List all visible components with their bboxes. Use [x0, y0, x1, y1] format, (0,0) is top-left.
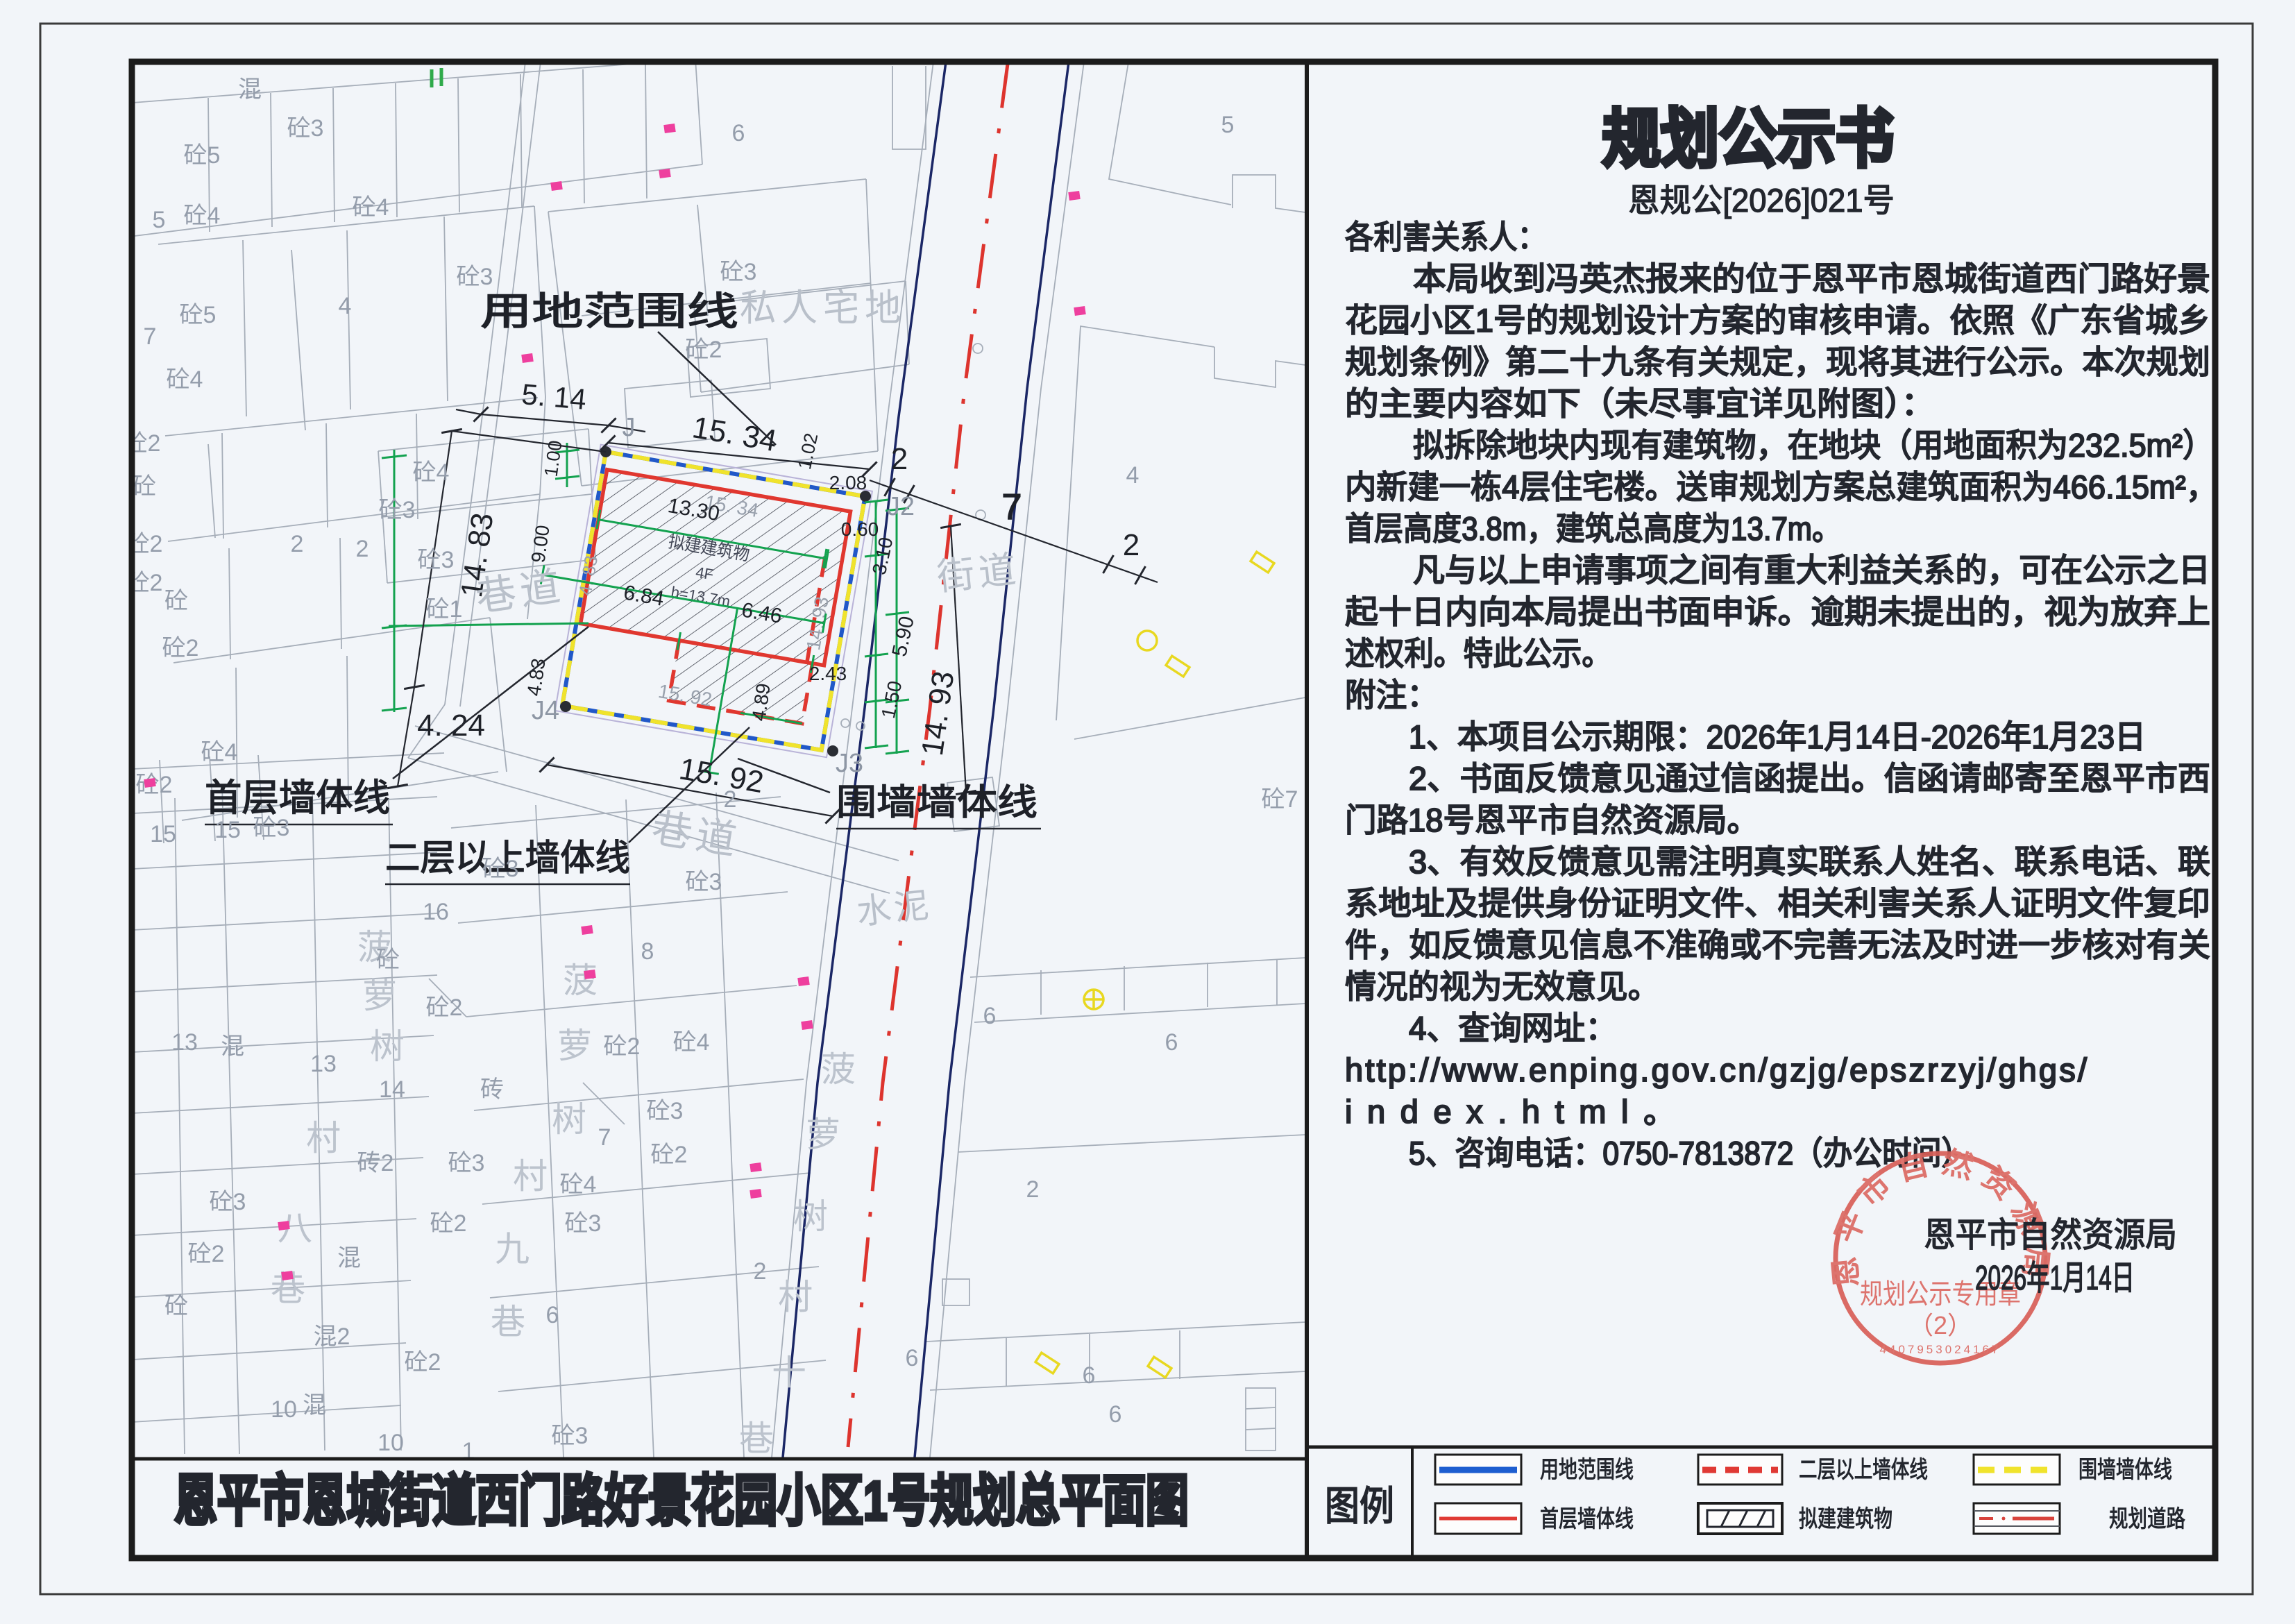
svg-text:砖2: 砖2: [357, 1150, 394, 1176]
svg-text:首层墙体线: 首层墙体线: [205, 777, 390, 819]
svg-text:7: 7: [1002, 487, 1022, 527]
svg-text:情况的视为无效意见。: 情况的视为无效意见。: [1345, 968, 1659, 1005]
svg-text:附注：: 附注：: [1345, 677, 1438, 713]
svg-text:6: 6: [906, 1345, 919, 1371]
svg-text:1、本项目公示期限：2026年1月14日-2026年1月23: 1、本项目公示期限：2026年1月14日-2026年1月23日: [1409, 718, 2146, 755]
svg-text:砼1: 砼1: [426, 596, 463, 623]
svg-text:14: 14: [379, 1076, 405, 1103]
svg-text:16: 16: [423, 899, 449, 925]
svg-text:6: 6: [1083, 1362, 1096, 1389]
svg-text:砼3: 砼3: [647, 1098, 684, 1124]
svg-text:砼: 砼: [164, 1293, 188, 1319]
svg-text:树: 树: [552, 1100, 586, 1139]
svg-text:水泥: 水泥: [855, 886, 933, 932]
svg-text:砼3: 砼3: [720, 259, 757, 285]
svg-text:件，如反馈意见信息不准确或不完善无法及时进一步核对有关: 件，如反馈意见信息不准确或不完善无法及时进一步核对有关: [1345, 927, 2210, 963]
svg-text:的主要内容如下（未尽事宜详见附图）：: 的主要内容如下（未尽事宜详见附图）：: [1345, 385, 1935, 422]
svg-text:规划公示书: 规划公示书: [1602, 104, 1894, 175]
svg-text:0.60: 0.60: [841, 518, 879, 540]
svg-text:4: 4: [1126, 462, 1140, 489]
svg-text:私人宅地: 私人宅地: [740, 287, 906, 329]
svg-text:5. 14: 5. 14: [520, 378, 588, 416]
svg-text:砼2: 砼2: [426, 995, 463, 1021]
svg-text:拟拆除地块内现有建筑物，在地块（用地面积为232.5m²）: 拟拆除地块内现有建筑物，在地块（用地面积为232.5m²）: [1413, 427, 2214, 464]
svg-text:砼3: 砼3: [210, 1189, 246, 1215]
svg-text:6: 6: [983, 1003, 997, 1029]
svg-text:本局收到冯英杰报来的位于恩平市恩城街道西门路好景: 本局收到冯英杰报来的位于恩平市恩城街道西门路好景: [1413, 260, 2210, 297]
svg-text:混: 混: [337, 1245, 361, 1271]
svg-text:混: 混: [221, 1033, 244, 1060]
svg-text:混: 混: [303, 1392, 326, 1419]
svg-text:10: 10: [378, 1430, 404, 1456]
svg-text:恩平市自然资源局: 恩平市自然资源局: [1924, 1217, 2177, 1254]
svg-text:混2: 混2: [314, 1323, 350, 1350]
svg-text:砼4: 砼4: [184, 203, 221, 229]
svg-text:恩平市恩城街道西门路好景花园小区1号规划总平面图: 恩平市恩城街道西门路好景花园小区1号规划总平面图: [174, 1470, 1189, 1532]
svg-text:砼4: 砼4: [673, 1029, 710, 1056]
svg-text:村: 村: [306, 1119, 341, 1158]
svg-text:恩规公[2026]021号: 恩规公[2026]021号: [1628, 182, 1895, 219]
svg-text:7: 7: [144, 323, 157, 350]
svg-text:围墙墙体线: 围墙墙体线: [836, 783, 1038, 823]
svg-text:6: 6: [546, 1302, 559, 1328]
svg-text:二层以上墙体线: 二层以上墙体线: [1799, 1457, 1928, 1483]
svg-text:萝: 萝: [806, 1115, 840, 1154]
svg-text:门路18号恩平市自然资源局。: 门路18号恩平市自然资源局。: [1345, 802, 1759, 838]
svg-text:2.43: 2.43: [809, 663, 847, 684]
svg-text:砼2: 砼2: [651, 1142, 688, 1168]
svg-text:规划条例》第二十九条有关规定，现将其进行公示。本次规划: 规划条例》第二十九条有关规定，现将其进行公示。本次规划: [1345, 344, 2210, 380]
svg-text:J2: J2: [887, 492, 915, 521]
svg-text:内新建一栋4层住宅楼。送审规划方案总建筑面积为466.15m: 内新建一栋4层住宅楼。送审规划方案总建筑面积为466.15m²，: [1345, 468, 2217, 505]
svg-text:图例: 图例: [1325, 1484, 1394, 1529]
svg-text:J3: J3: [836, 749, 863, 778]
svg-text:砼3: 砼3: [552, 1423, 588, 1449]
svg-text:2: 2: [754, 1258, 767, 1285]
svg-text:15: 15: [150, 821, 176, 847]
svg-text:各利害关系人：: 各利害关系人：: [1345, 219, 1546, 255]
svg-text:2: 2: [291, 531, 304, 557]
svg-text:首层墙体线: 首层墙体线: [1540, 1506, 1634, 1532]
svg-text:6: 6: [1109, 1401, 1122, 1428]
svg-text:砼5: 砼5: [180, 302, 217, 328]
svg-text:树: 树: [370, 1027, 405, 1066]
svg-text:萝: 萝: [362, 976, 397, 1015]
svg-text:8: 8: [641, 938, 654, 965]
svg-text:4F: 4F: [695, 564, 715, 584]
svg-text:砼4: 砼4: [353, 194, 389, 221]
svg-text:J: J: [623, 413, 636, 442]
svg-text:7: 7: [598, 1124, 611, 1151]
svg-text:砼2: 砼2: [430, 1210, 467, 1237]
svg-text:九: 九: [495, 1230, 530, 1269]
svg-text:6: 6: [732, 120, 745, 146]
svg-text:砼4: 砼4: [167, 366, 203, 393]
svg-text:砖: 砖: [480, 1076, 504, 1103]
svg-text:萝: 萝: [557, 1026, 592, 1065]
svg-text:4: 4: [339, 293, 352, 319]
svg-text:起十日内向本局提出书面申诉。逾期未提出的，视为放弃上: 起十日内向本局提出书面申诉。逾期未提出的，视为放弃上: [1345, 593, 2210, 630]
svg-text:2: 2: [1026, 1176, 1040, 1203]
svg-text:6: 6: [1165, 1029, 1178, 1056]
svg-text:花园小区1号的规划设计方案的审核申请。依照《广东省城乡: 花园小区1号的规划设计方案的审核申请。依照《广东省城乡: [1345, 302, 2210, 339]
svg-text:街道: 街道: [935, 548, 1022, 598]
svg-text:砼5: 砼5: [184, 142, 221, 169]
svg-text:砼2: 砼2: [686, 337, 722, 363]
svg-text:3、有效反馈意见需注明真实联系人姓名、联系电话、联: 3、有效反馈意见需注明真实联系人姓名、联系电话、联: [1409, 843, 2210, 880]
svg-text:砼2: 砼2: [188, 1241, 225, 1267]
svg-text:4、查询网址：: 4、查询网址：: [1409, 1010, 1617, 1047]
svg-text:10: 10: [271, 1396, 297, 1423]
svg-text:4407953024167: 4407953024167: [1880, 1343, 2001, 1356]
svg-text:砼4: 砼4: [413, 459, 450, 486]
svg-text:15: 15: [214, 817, 241, 843]
svg-text:（2）: （2）: [1908, 1311, 1972, 1339]
svg-text:砼3: 砼3: [448, 1150, 485, 1176]
svg-text:巷: 巷: [739, 1419, 774, 1458]
svg-text:十: 十: [772, 1353, 806, 1392]
svg-text:砼3: 砼3: [379, 497, 416, 523]
svg-text:13: 13: [310, 1051, 337, 1077]
svg-text:2026年1月14日: 2026年1月14日: [1975, 1260, 2135, 1297]
svg-text:13: 13: [171, 1029, 198, 1056]
svg-text:树: 树: [793, 1197, 828, 1236]
svg-text:2: 2: [724, 786, 737, 813]
svg-text:砼2: 砼2: [604, 1033, 641, 1060]
svg-text:砼4: 砼4: [201, 739, 238, 766]
svg-text:用地范围线: 用地范围线: [480, 289, 738, 333]
svg-text:拟建建筑物: 拟建建筑物: [1799, 1506, 1892, 1532]
svg-text:砼4: 砼4: [560, 1172, 597, 1198]
svg-text:砼: 砼: [164, 588, 188, 614]
svg-text:砼3: 砼3: [287, 115, 324, 142]
svg-text:菠: 菠: [563, 961, 598, 1000]
svg-text:5: 5: [153, 207, 166, 233]
svg-text:凡与以上申请事项之间有重大利益关系的，可在公示之日: 凡与以上申请事项之间有重大利益关系的，可在公示之日: [1413, 552, 2210, 589]
svg-text:2: 2: [356, 536, 369, 562]
svg-text:首层高度3.8m，建筑总高度为13.7m。: 首层高度3.8m，建筑总高度为13.7m。: [1345, 510, 1841, 547]
svg-text:砼3: 砼3: [457, 264, 493, 290]
svg-text:2: 2: [891, 442, 908, 476]
svg-text:砼3: 砼3: [418, 547, 455, 573]
svg-text:砼3: 砼3: [482, 856, 519, 882]
svg-text:砼7: 砼7: [1262, 786, 1298, 813]
svg-text:2.08: 2.08: [829, 472, 867, 493]
svg-text:村: 村: [513, 1157, 548, 1196]
svg-text:系地址及提供身份证明文件、相关利害关系人证明文件复印: 系地址及提供身份证明文件、相关利害关系人证明文件复印: [1345, 885, 2210, 922]
svg-text:砼: 砼: [376, 947, 400, 973]
svg-text:砼: 砼: [133, 473, 156, 500]
svg-text:4. 24: 4. 24: [417, 709, 485, 743]
svg-text:砼3: 砼3: [565, 1210, 602, 1237]
svg-text:规划道路: 规划道路: [2109, 1506, 2185, 1532]
svg-text:围墙墙体线: 围墙墙体线: [2078, 1457, 2172, 1483]
svg-text:砼3: 砼3: [253, 815, 290, 841]
svg-text:砼2: 砼2: [405, 1349, 441, 1376]
svg-text:述权利。特此公示。: 述权利。特此公示。: [1345, 635, 1611, 672]
svg-text:J4: J4: [532, 696, 559, 725]
svg-text:用地范围线: 用地范围线: [1540, 1457, 1634, 1483]
svg-text:5: 5: [1221, 112, 1235, 138]
svg-text:混: 混: [238, 76, 262, 103]
svg-text:砼3: 砼3: [686, 869, 722, 895]
svg-text:2、书面反馈意见通过信函提出。信函请邮寄至恩平市西: 2、书面反馈意见通过信函提出。信函请邮寄至恩平市西: [1409, 760, 2210, 797]
svg-text:菠: 菠: [821, 1050, 856, 1089]
svg-text:村: 村: [778, 1278, 813, 1317]
svg-text:2: 2: [1123, 528, 1140, 562]
svg-text:巷: 巷: [491, 1303, 525, 1342]
svg-text:砼2: 砼2: [162, 635, 199, 661]
